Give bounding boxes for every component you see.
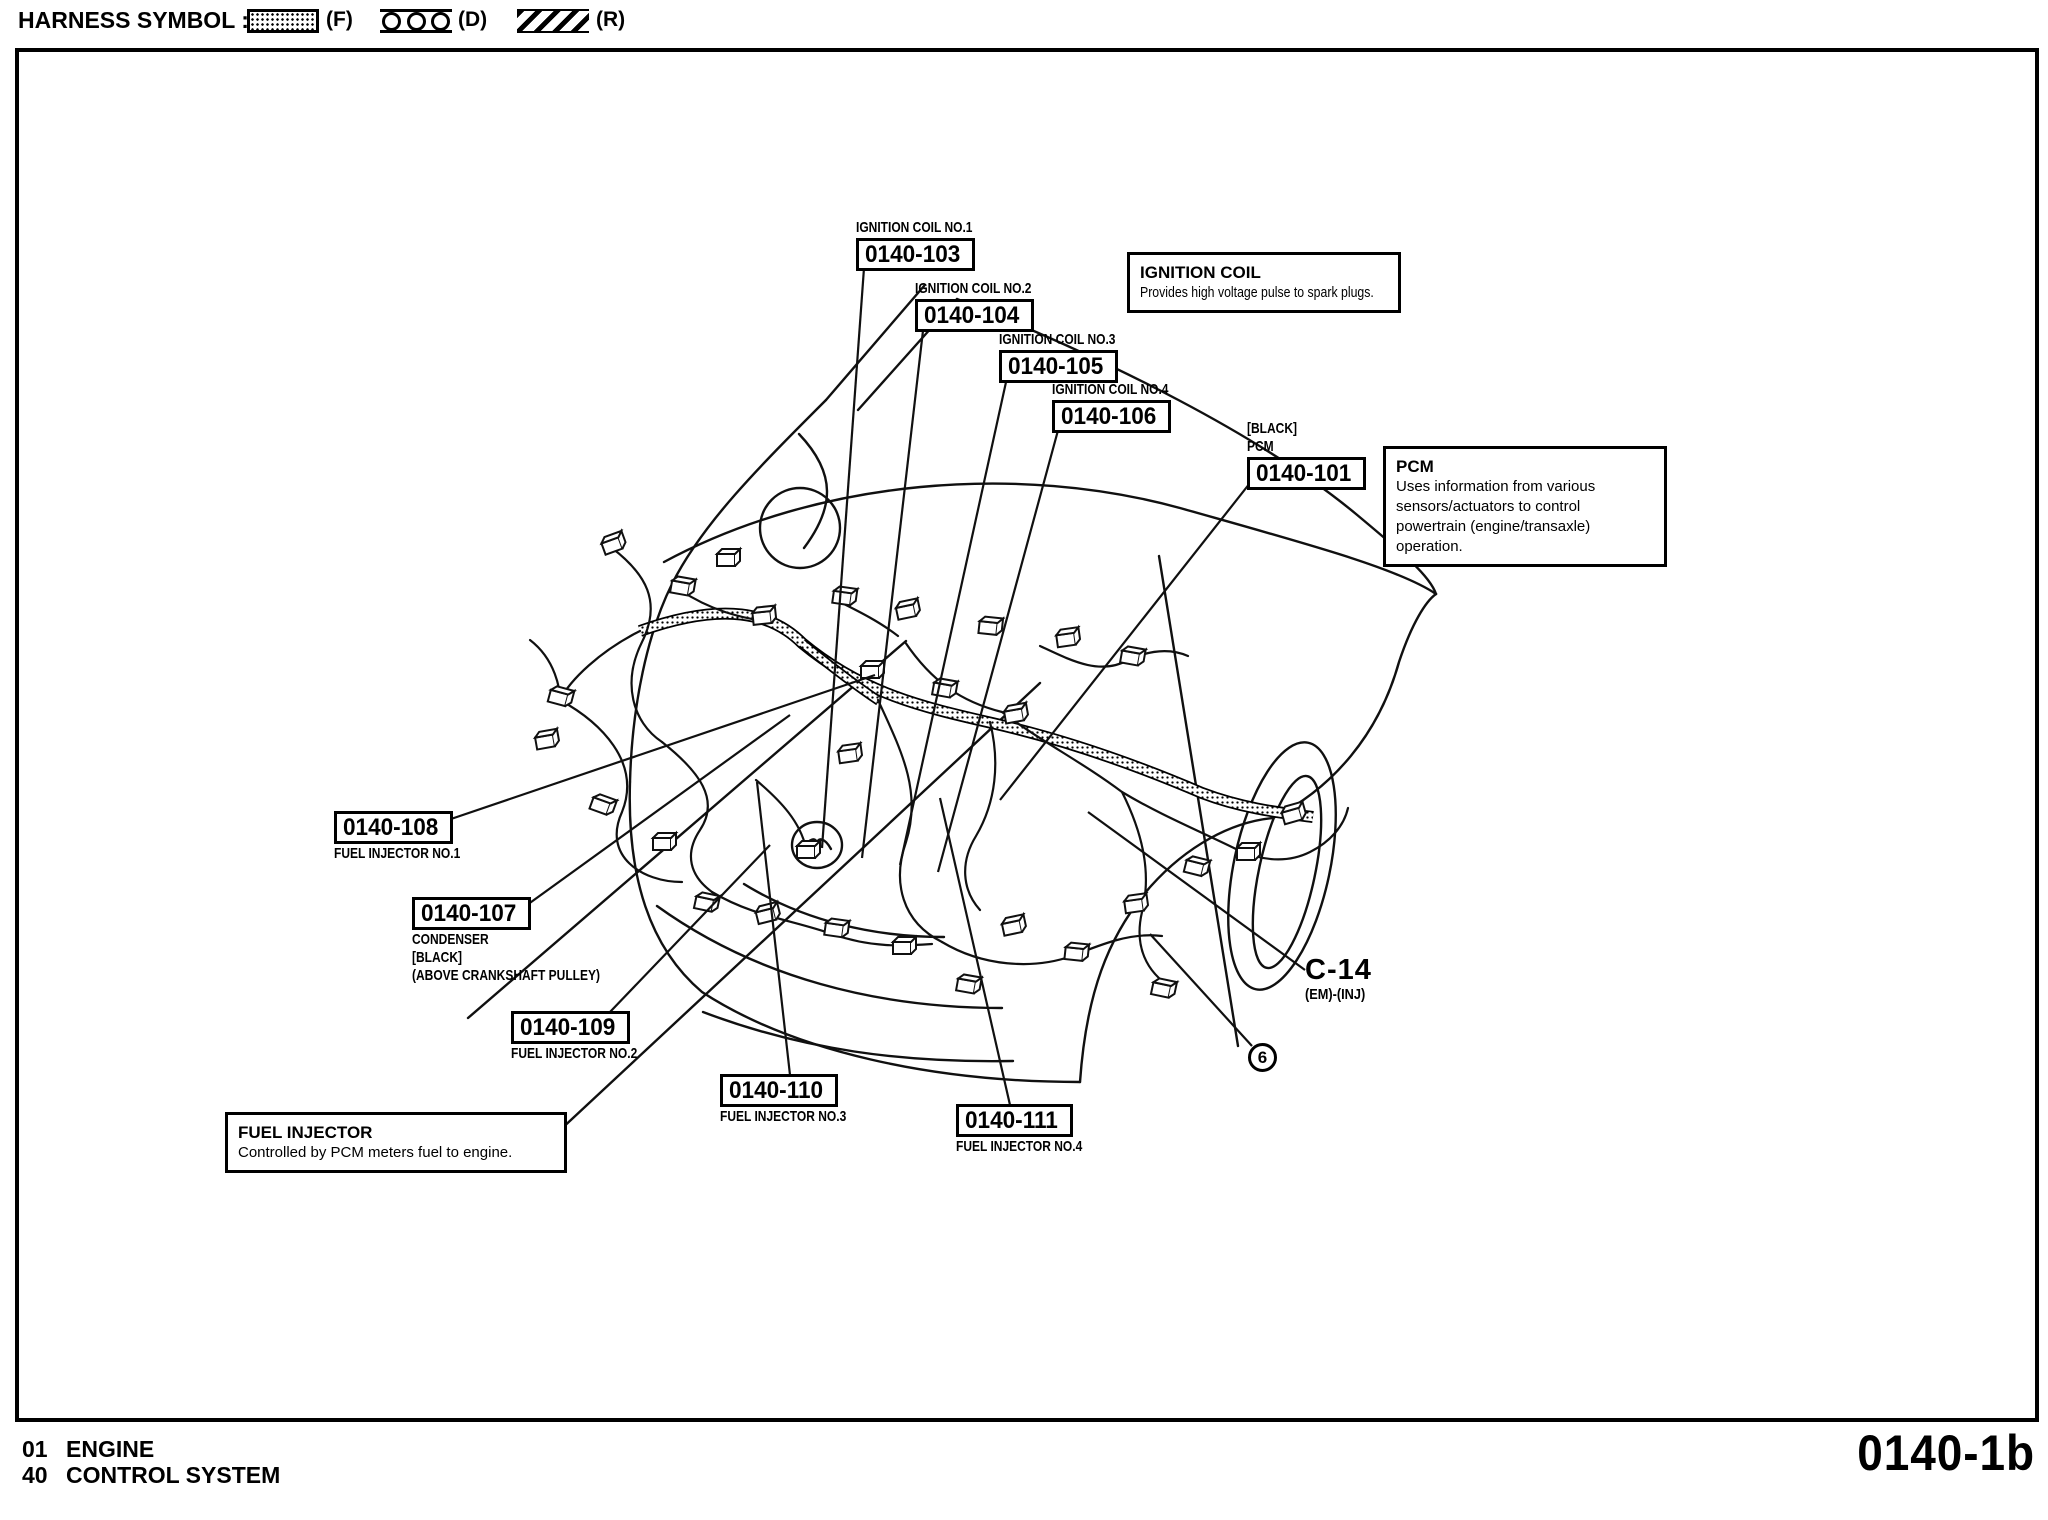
part-number-box: 0140-106 — [1052, 400, 1171, 433]
callout-condenser: 0140-107 CONDENSER [BLACK] (ABOVE CRANKS… — [412, 896, 647, 985]
callout-ignition-coil-3: IGNITION COIL NO.3 0140-105 — [999, 331, 1145, 384]
callout-pcm: [BLACK] PCM 0140-101 — [1247, 420, 1366, 491]
dash-harness-pattern-swatch — [380, 9, 452, 33]
callout-caption: IGNITION COIL NO.4 — [1052, 381, 1168, 399]
callout-ignition-coil-2: IGNITION COIL NO.2 0140-104 — [915, 280, 1061, 333]
info-box-body: Provides high voltage pulse to spark plu… — [1140, 283, 1343, 303]
ignition-coil-info-box: IGNITION COIL Provides high voltage puls… — [1127, 252, 1401, 313]
info-box-body: Uses information from various sensors/ac… — [1396, 477, 1654, 557]
part-number: 0140-105 — [1008, 353, 1103, 380]
connector-code: C-14 — [1305, 954, 1376, 986]
part-number-box: 0140-108 — [334, 811, 453, 844]
info-box-body: Controlled by PCM meters fuel to engine. — [238, 1143, 554, 1163]
part-number-box: 0140-101 — [1247, 457, 1366, 490]
front-harness-pattern-swatch — [247, 9, 319, 33]
diagram-frame — [15, 48, 2039, 1422]
part-number-box: 0140-103 — [856, 238, 975, 271]
callout-caption: IGNITION COIL NO.2 — [915, 280, 1031, 298]
section-line: 01ENGINE — [22, 1436, 280, 1462]
info-box-title: PCM — [1396, 456, 1654, 477]
callout-ignition-coil-4: IGNITION COIL NO.4 0140-106 — [1052, 381, 1198, 434]
harness-symbol-legend-label: HARNESS SYMBOL : — [18, 6, 249, 34]
callout-caption: FUEL INJECTOR NO.2 — [511, 1045, 637, 1063]
connector-reference: C-14 (EM)-(INJ) — [1305, 954, 1376, 1004]
callout-caption: [BLACK] — [412, 949, 600, 967]
callout-caption: (ABOVE CRANKSHAFT PULLEY) — [412, 967, 600, 985]
part-number-box: 0140-111 — [956, 1104, 1073, 1137]
callout-caption: PCM — [1247, 438, 1343, 456]
fuel-injector-info-box: FUEL INJECTOR Controlled by PCM meters f… — [225, 1112, 567, 1173]
section-number: 01 — [22, 1436, 66, 1462]
part-number-box: 0140-109 — [511, 1011, 630, 1044]
part-number: 0140-110 — [729, 1077, 823, 1104]
service-manual-page: HARNESS SYMBOL : (F) (D) (R) — [0, 0, 2048, 1520]
info-box-title: FUEL INJECTOR — [238, 1122, 554, 1143]
callout-fuel-injector-1: 0140-108 FUEL INJECTOR NO.1 — [334, 810, 492, 863]
callout-caption: IGNITION COIL NO.1 — [856, 219, 972, 237]
part-number: 0140-111 — [965, 1107, 1058, 1134]
part-number-box: 0140-105 — [999, 350, 1118, 383]
rear-harness-pattern-swatch — [517, 9, 589, 33]
rear-harness-code: (R) — [596, 7, 625, 33]
pcm-info-box: PCM Uses information from various sensor… — [1383, 446, 1667, 567]
callout-fuel-injector-2: 0140-109 FUEL INJECTOR NO.2 — [511, 1010, 669, 1063]
part-number-box: 0140-110 — [720, 1074, 838, 1107]
part-number: 0140-109 — [520, 1014, 615, 1041]
part-number: 0140-101 — [1256, 460, 1351, 487]
section-name: ENGINE — [66, 1436, 154, 1462]
part-number: 0140-108 — [343, 814, 438, 841]
part-number: 0140-104 — [924, 302, 1019, 329]
section-number: 40 — [22, 1462, 66, 1488]
part-number-box: 0140-104 — [915, 299, 1034, 332]
callout-caption: FUEL INJECTOR NO.3 — [720, 1108, 846, 1126]
circled-number-6: 6 — [1248, 1043, 1277, 1072]
callout-ignition-coil-1: IGNITION COIL NO.1 0140-103 — [856, 219, 1002, 272]
page-code: 0140-1b — [1690, 1426, 2035, 1480]
section-footer: 01ENGINE 40CONTROL SYSTEM — [22, 1436, 280, 1488]
callout-caption: IGNITION COIL NO.3 — [999, 331, 1115, 349]
part-number: 0140-106 — [1061, 403, 1156, 430]
part-number-box: 0140-107 — [412, 897, 531, 930]
section-name: CONTROL SYSTEM — [66, 1462, 280, 1488]
info-box-title: IGNITION COIL — [1140, 262, 1388, 283]
callout-caption: FUEL INJECTOR NO.1 — [334, 845, 460, 863]
part-number: 0140-107 — [421, 900, 516, 927]
section-line: 40CONTROL SYSTEM — [22, 1462, 280, 1488]
callout-caption: [BLACK] — [1247, 420, 1343, 438]
front-harness-code: (F) — [326, 7, 353, 33]
callout-fuel-injector-3: 0140-110 FUEL INJECTOR NO.3 — [720, 1073, 878, 1126]
connector-detail: (EM)-(INJ) — [1305, 986, 1365, 1004]
callout-caption: CONDENSER — [412, 931, 600, 949]
part-number: 0140-103 — [865, 241, 960, 268]
callout-caption: FUEL INJECTOR NO.4 — [956, 1138, 1082, 1156]
callout-fuel-injector-4: 0140-111 FUEL INJECTOR NO.4 — [956, 1103, 1114, 1156]
dash-harness-code: (D) — [458, 7, 487, 33]
